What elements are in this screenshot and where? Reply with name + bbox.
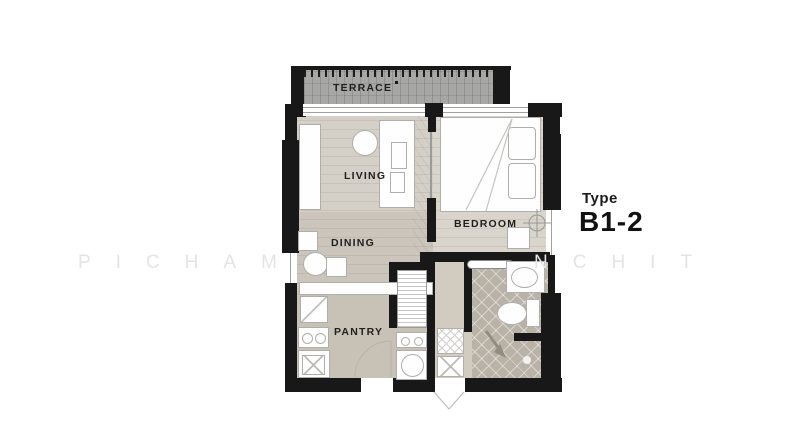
washing-machine bbox=[396, 350, 427, 380]
knob-icon bbox=[401, 337, 410, 346]
terrace-label: TERRACE bbox=[333, 82, 392, 94]
pillow bbox=[508, 163, 536, 199]
terrace-sliding-door bbox=[303, 104, 425, 116]
unit-type-value: B1-2 bbox=[579, 206, 644, 238]
bathroom-stub-wall bbox=[514, 333, 545, 341]
burner-icon bbox=[302, 333, 313, 344]
partition-stub-mid bbox=[427, 198, 436, 242]
pantry-label: PANTRY bbox=[334, 326, 383, 338]
dining-chair bbox=[298, 231, 318, 251]
wall-right-window-pillar bbox=[543, 134, 561, 210]
nightstand bbox=[507, 227, 530, 249]
bedroom-side-window bbox=[546, 210, 557, 255]
terrace-railing-ticks bbox=[304, 70, 493, 77]
bedroom-top-window bbox=[443, 104, 529, 116]
toilet-tank bbox=[526, 299, 540, 327]
wall-left-lower bbox=[285, 283, 297, 380]
toilet-bowl bbox=[497, 302, 527, 325]
wall-right-lower bbox=[541, 293, 561, 392]
coffee-table bbox=[352, 130, 378, 156]
entry-door-swing bbox=[434, 392, 464, 409]
wardrobe-shelves bbox=[397, 270, 427, 328]
wall-top-mid bbox=[425, 103, 443, 117]
watermark-right: NCHIT bbox=[534, 252, 717, 274]
wall-left-upper bbox=[285, 104, 297, 142]
stove bbox=[298, 327, 329, 348]
wall-top-right-step bbox=[543, 103, 560, 135]
partition-stub-top bbox=[428, 116, 436, 132]
floor-plan-canvas: PICHAM NCHIT bbox=[0, 0, 800, 445]
dining-chair bbox=[326, 257, 347, 277]
wall-left-window-pillar bbox=[282, 140, 299, 253]
pillow bbox=[508, 127, 536, 160]
wall-bottom-a bbox=[285, 378, 361, 392]
appliance-unit bbox=[396, 332, 427, 348]
sink-basin-icon bbox=[302, 355, 325, 375]
fridge bbox=[300, 296, 328, 323]
tv-screen bbox=[391, 142, 407, 169]
water-heater bbox=[437, 356, 464, 377]
pantry-door-opening bbox=[361, 378, 393, 392]
kitchen-sink bbox=[298, 350, 330, 378]
closet-left-wall bbox=[389, 262, 397, 328]
watermark-left: PICHAM bbox=[78, 252, 302, 274]
dining-label: DINING bbox=[331, 237, 375, 249]
shoe-shelf bbox=[437, 328, 464, 354]
terrace-dot bbox=[395, 81, 398, 84]
living-label: LIVING bbox=[344, 170, 386, 182]
tv-shelf bbox=[390, 172, 405, 193]
washer-drum-icon bbox=[401, 354, 424, 377]
entry-door-opening bbox=[433, 378, 465, 392]
floor-drain bbox=[523, 356, 531, 364]
dining-table bbox=[303, 252, 328, 276]
knob-icon bbox=[414, 337, 423, 346]
burner-icon bbox=[315, 333, 326, 344]
bedroom-label: BEDROOM bbox=[454, 218, 517, 230]
bathroom-left-wall bbox=[464, 262, 472, 332]
sofa bbox=[299, 124, 321, 210]
unit-type-caption: Type bbox=[582, 190, 618, 207]
